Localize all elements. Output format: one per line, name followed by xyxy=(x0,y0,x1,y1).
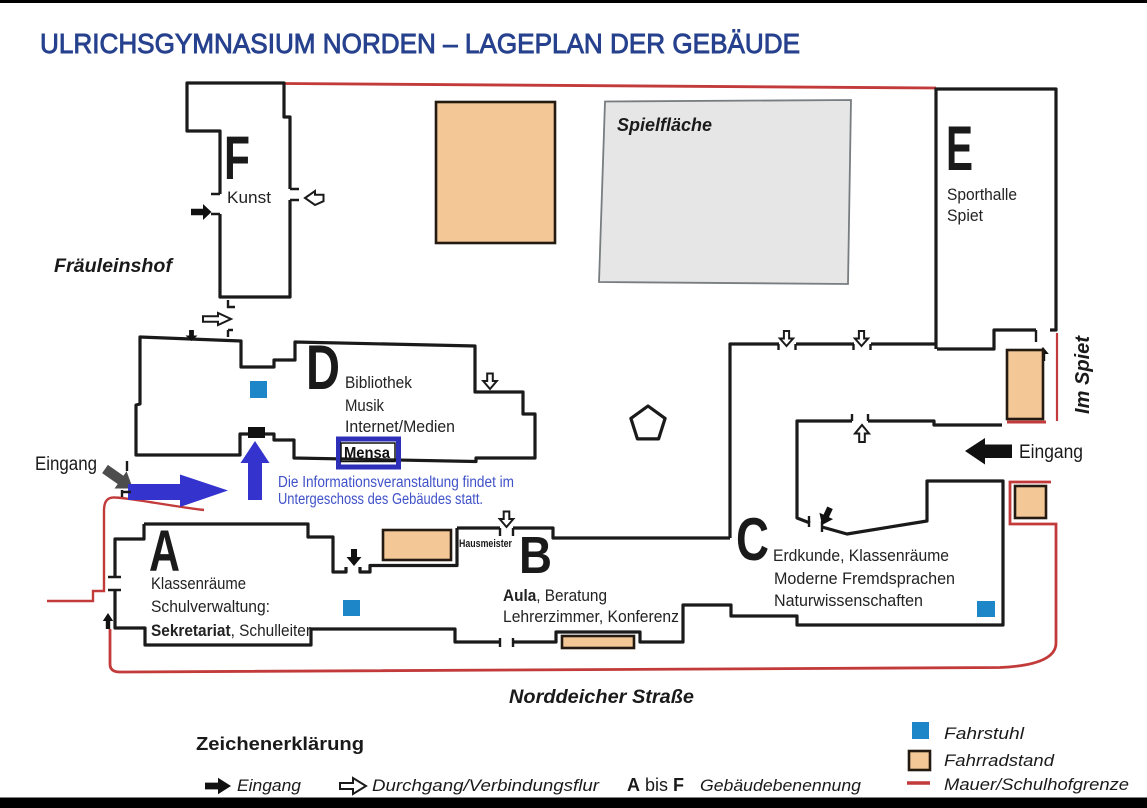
svg-text:Norddeicher Straße: Norddeicher Straße xyxy=(509,687,694,708)
svg-text:Naturwissenschaften: Naturwissenschaften xyxy=(774,591,923,610)
svg-text:Mensa: Mensa xyxy=(344,445,390,462)
svg-text:Erdkunde, Klassenräume: Erdkunde, Klassenräume xyxy=(773,546,949,565)
svg-text:Moderne Fremdsprachen: Moderne Fremdsprachen xyxy=(774,569,955,588)
svg-text:Aula, Beratung: Aula, Beratung xyxy=(503,586,607,605)
svg-text:Zeichenerklärung: Zeichenerklärung xyxy=(196,734,364,754)
svg-text:A bis F: A bis F xyxy=(627,775,684,795)
svg-text:ULRICHSGYMNASIUM NORDEN – LAGE: ULRICHSGYMNASIUM NORDEN – LAGEPLAN DER G… xyxy=(40,28,800,59)
svg-text:Im Spiet: Im Spiet xyxy=(1072,335,1094,414)
svg-text:Hausmeister: Hausmeister xyxy=(459,538,513,550)
svg-text:Fahrstuhl: Fahrstuhl xyxy=(944,724,1025,743)
svg-text:E: E xyxy=(946,114,973,184)
svg-text:C: C xyxy=(736,506,769,573)
svg-text:Kunst: Kunst xyxy=(227,188,271,207)
svg-text:F: F xyxy=(224,124,250,192)
svg-text:Die Informationsveranstaltung: Die Informationsveranstaltung findet im xyxy=(278,474,514,491)
svg-text:Eingang: Eingang xyxy=(1019,442,1083,463)
svg-text:Fräuleinshof: Fräuleinshof xyxy=(54,256,174,277)
svg-text:Internet/Medien: Internet/Medien xyxy=(345,417,455,436)
svg-text:Untergeschoss des Gebäudes sta: Untergeschoss des Gebäudes statt. xyxy=(278,491,483,508)
svg-text:Eingang: Eingang xyxy=(237,776,302,795)
svg-text:Eingang: Eingang xyxy=(35,454,97,475)
svg-text:Lehrerzimmer, Konferenz: Lehrerzimmer, Konferenz xyxy=(503,607,679,626)
svg-text:Sekretariat, Schulleiter: Sekretariat, Schulleiter xyxy=(151,621,311,640)
svg-text:D: D xyxy=(306,333,340,403)
svg-text:Schulverwaltung:: Schulverwaltung: xyxy=(151,597,270,616)
svg-text:Mauer/Schulhofgrenze: Mauer/Schulhofgrenze xyxy=(944,775,1129,794)
svg-text:Durchgang/Verbindungsflur: Durchgang/Verbindungsflur xyxy=(372,776,600,795)
svg-text:Spiet: Spiet xyxy=(947,206,983,225)
svg-text:Klassenräume: Klassenräume xyxy=(151,574,246,593)
svg-text:Sporthalle: Sporthalle xyxy=(947,185,1017,204)
svg-text:Fahrradstand: Fahrradstand xyxy=(944,751,1055,770)
svg-text:Spielfläche: Spielfläche xyxy=(617,115,712,135)
svg-text:Gebäudebenennung: Gebäudebenennung xyxy=(700,776,862,795)
svg-text:Musik: Musik xyxy=(345,396,384,415)
svg-text:Bibliothek: Bibliothek xyxy=(345,373,412,392)
svg-text:B: B xyxy=(519,527,552,585)
